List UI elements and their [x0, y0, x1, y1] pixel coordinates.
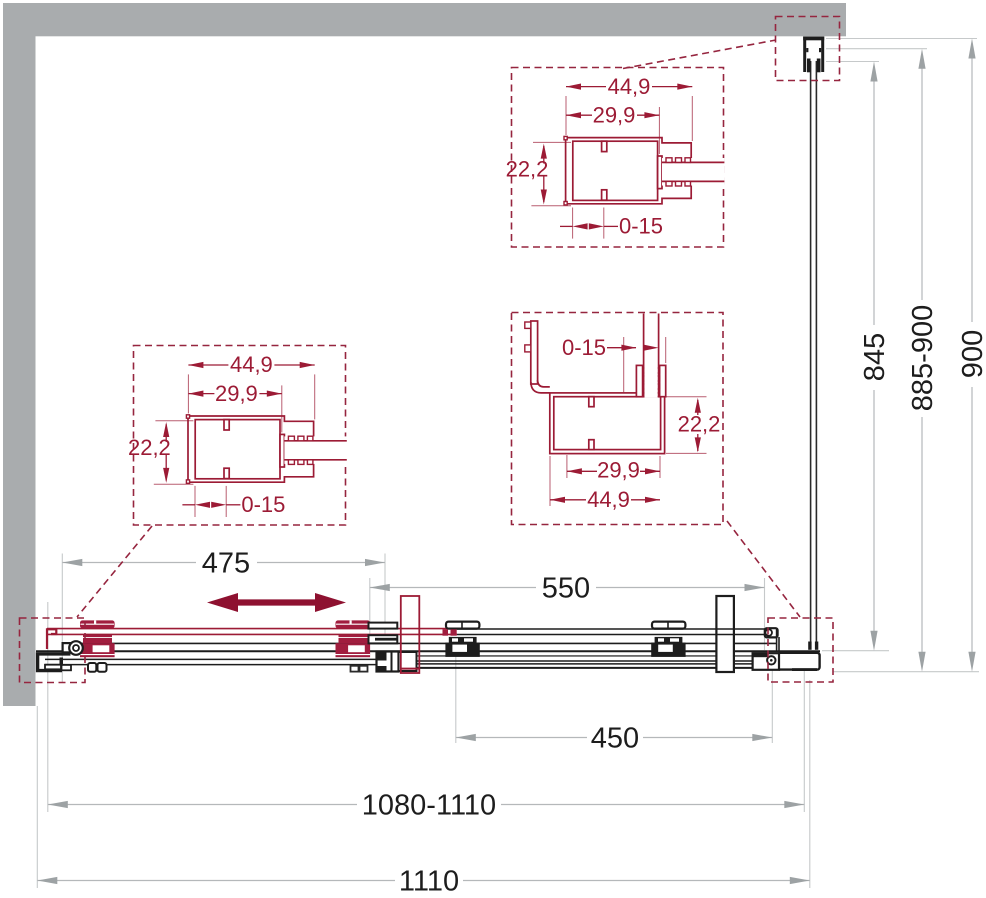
svg-text:0-15: 0-15 [619, 214, 663, 239]
svg-text:885-900: 885-900 [907, 305, 939, 411]
svg-text:450: 450 [591, 723, 639, 755]
svg-text:44,9: 44,9 [587, 487, 630, 512]
svg-text:29,9: 29,9 [597, 457, 640, 482]
svg-text:475: 475 [202, 548, 250, 580]
svg-text:1110: 1110 [399, 866, 459, 898]
svg-text:845: 845 [859, 333, 891, 381]
svg-text:1080-1110: 1080-1110 [362, 790, 496, 822]
svg-text:22,2: 22,2 [678, 412, 721, 437]
svg-text:900: 900 [957, 330, 986, 378]
svg-text:0-15: 0-15 [562, 335, 606, 360]
svg-text:44,9: 44,9 [608, 74, 651, 99]
svg-text:29,9: 29,9 [593, 102, 636, 127]
svg-text:550: 550 [542, 573, 590, 605]
svg-text:22,2: 22,2 [506, 157, 549, 182]
